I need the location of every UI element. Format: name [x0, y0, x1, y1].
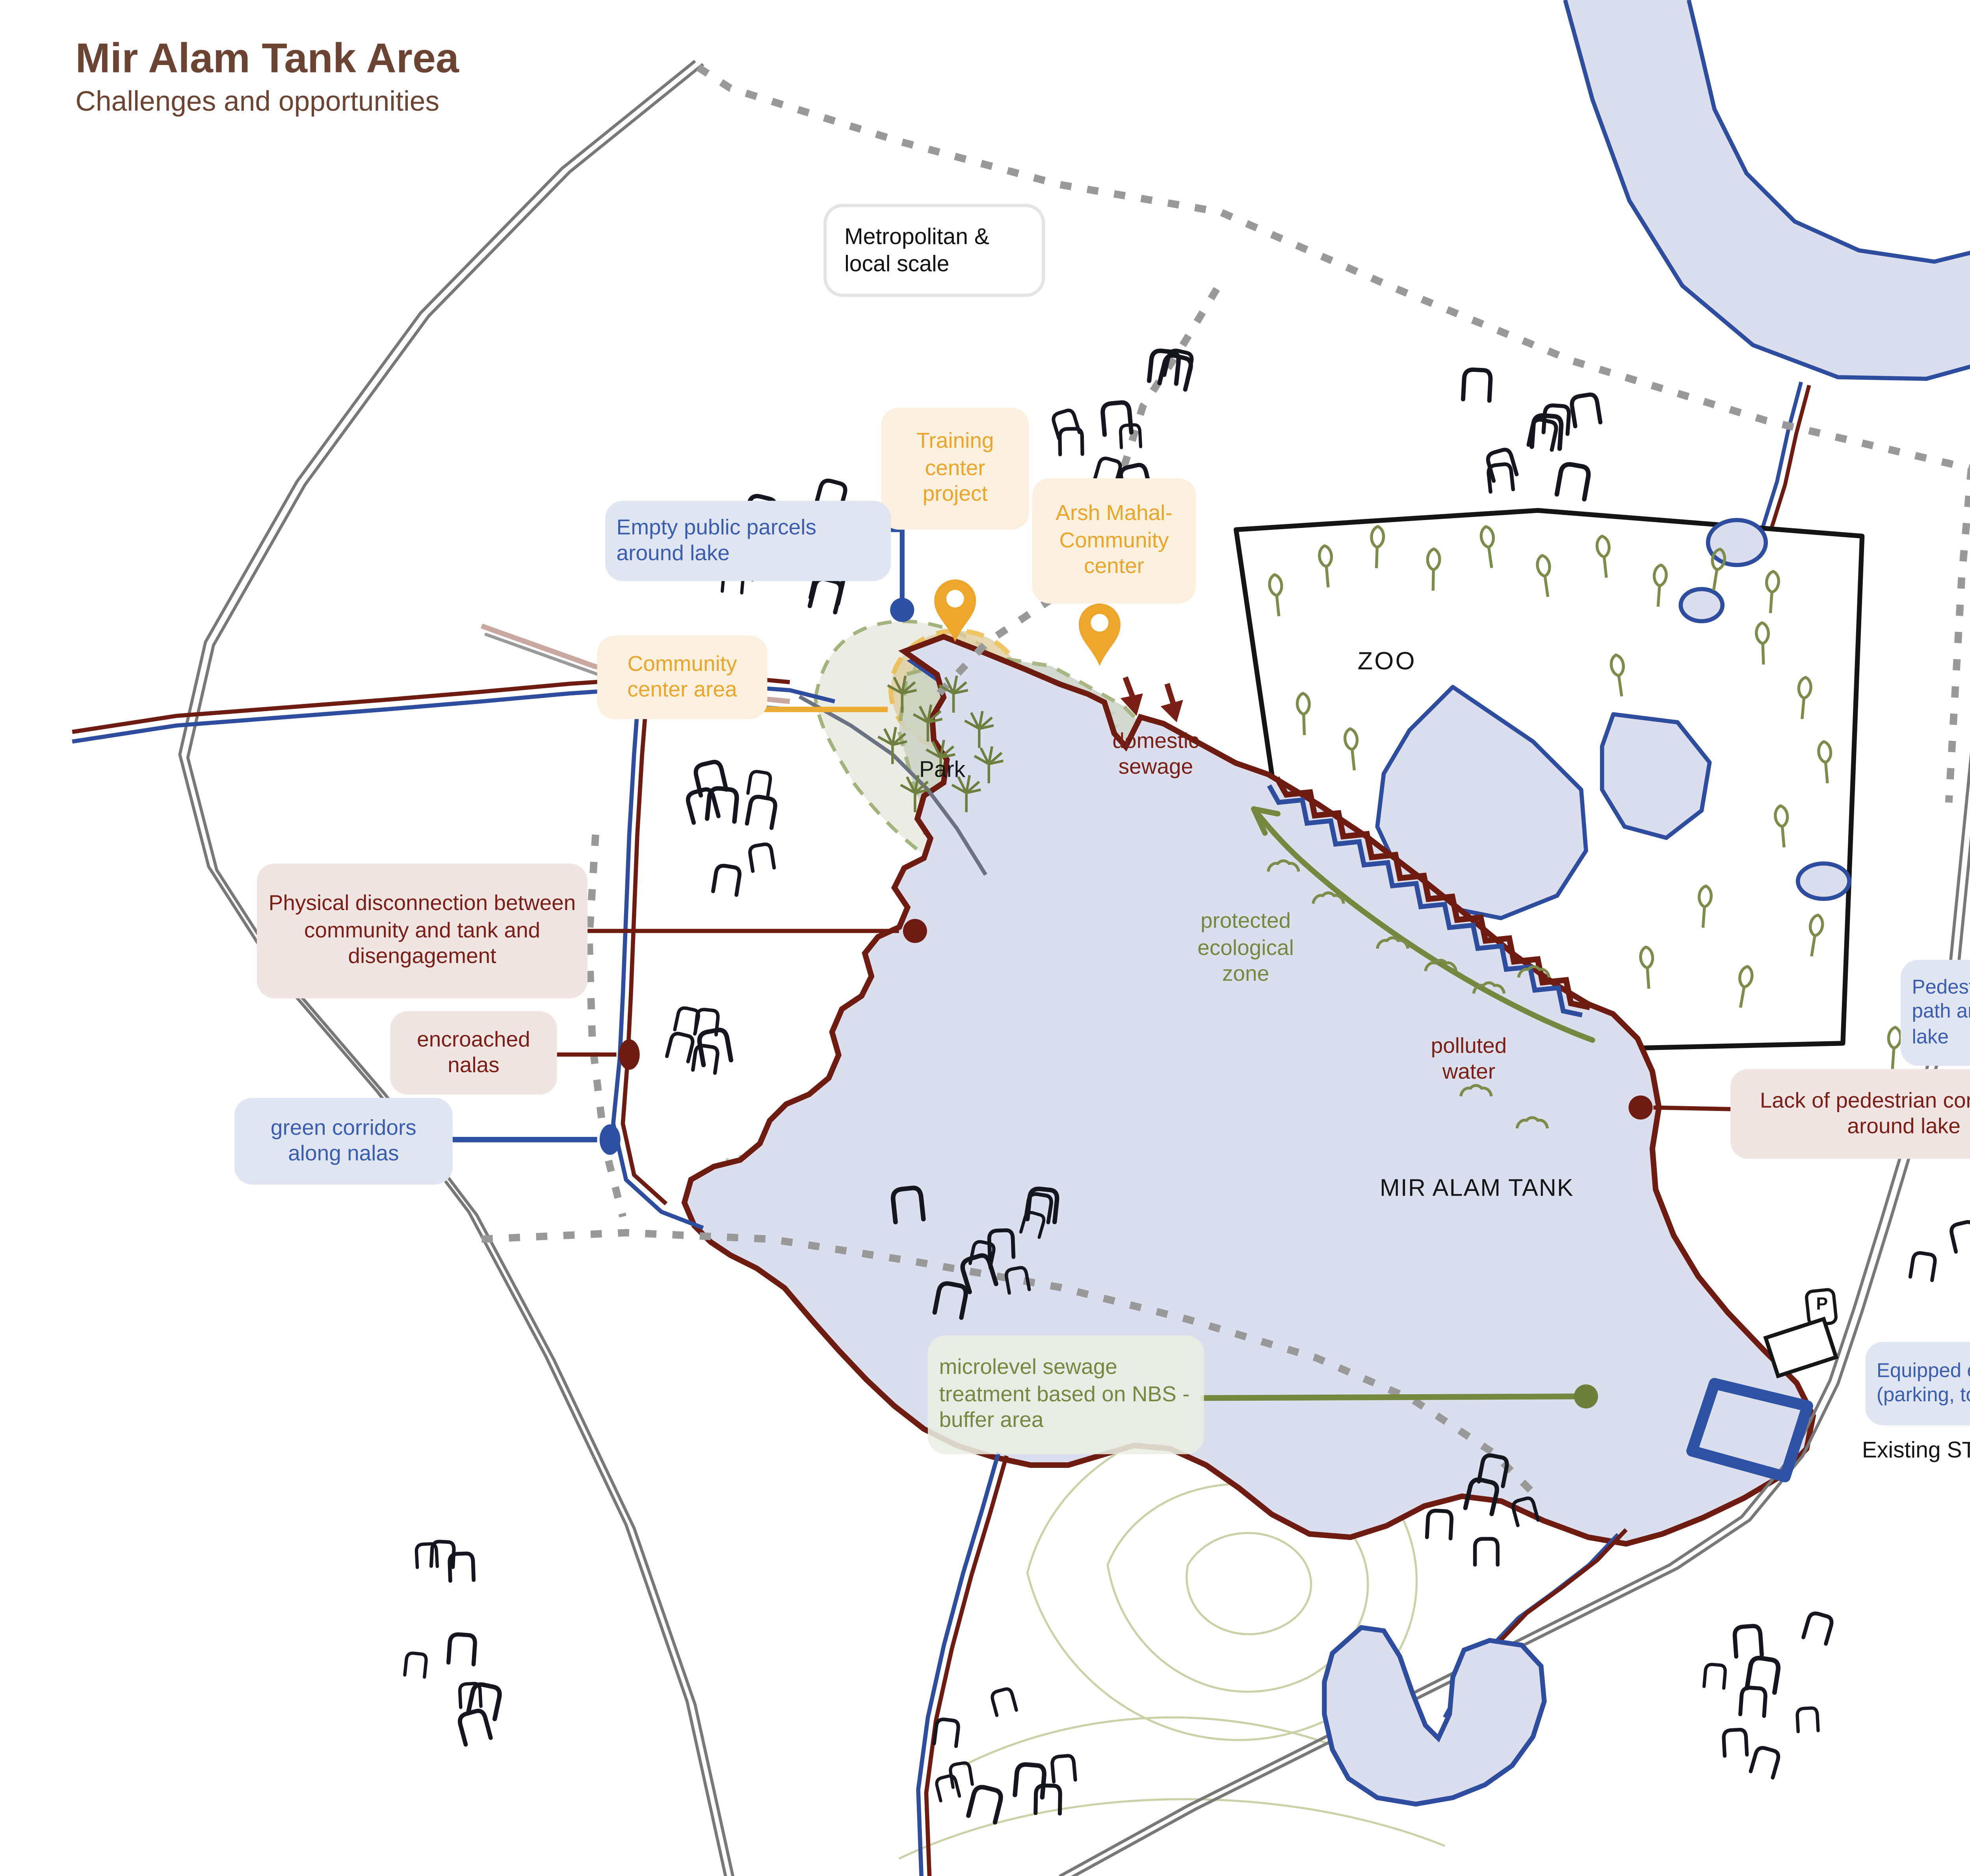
label-domestic-sewage: domestic sewage: [1092, 719, 1220, 789]
empty-parcels-dot: [890, 598, 914, 622]
title-block: Mir Alam Tank Area Challenges and opport…: [75, 35, 459, 118]
label-training-center: Training center project: [881, 408, 1029, 530]
river-nala: [1761, 382, 1809, 536]
label-lack-pedestrian: Lack of pedestrian connection around lak…: [1730, 1069, 1970, 1159]
poster: Mir Alam Tank Area Challenges and opport…: [0, 0, 1970, 1876]
label-empty-parcels: Empty public parcels around lake: [605, 501, 891, 581]
label-park: Park: [902, 754, 983, 786]
label-microlevel-sewage: microlevel sewage treatment based on NBS…: [928, 1335, 1204, 1454]
label-pedestrian-path: Pedestrian path around lake: [1901, 960, 1970, 1066]
label-arsh-mahal: Arsh Mahal- Community center: [1032, 478, 1196, 604]
scale-note: Metropolitan & local scale: [823, 204, 1045, 297]
microlevel-dot: [1574, 1384, 1598, 1408]
river: [1565, 0, 1970, 379]
parking-letter: P: [1811, 1294, 1833, 1319]
label-mir-alam-tank: MIR ALAM TANK: [1364, 1172, 1589, 1207]
lack-pedestrian-dot: [1628, 1096, 1652, 1120]
label-existing-stp: Existing STP: [1846, 1435, 1970, 1467]
page-title: Mir Alam Tank Area: [75, 35, 459, 81]
label-physical-disconnection: Physical disconnection between community…: [257, 864, 587, 998]
arsh-mahal-pin: [1079, 604, 1121, 666]
label-green-corridors: green corridors along nalas: [234, 1098, 453, 1185]
label-community-center-area: Community center area: [597, 635, 768, 719]
label-protected-zone: protected ecological zone: [1176, 895, 1314, 1001]
disconnection-dot: [903, 919, 927, 943]
label-zoo: ZOO: [1342, 645, 1432, 681]
page-subtitle: Challenges and opportunities: [75, 84, 459, 118]
green-corridors-dot: [600, 1124, 621, 1155]
label-polluted-water: polluted water: [1409, 1024, 1528, 1094]
encroached-nalas-dot: [619, 1039, 640, 1070]
label-encroached-nalas: encroached nalas: [390, 1011, 557, 1095]
southern-pond: [1324, 1627, 1544, 1804]
label-equipped-entry: Equipped entry point (parking, toilets): [1865, 1342, 1970, 1425]
